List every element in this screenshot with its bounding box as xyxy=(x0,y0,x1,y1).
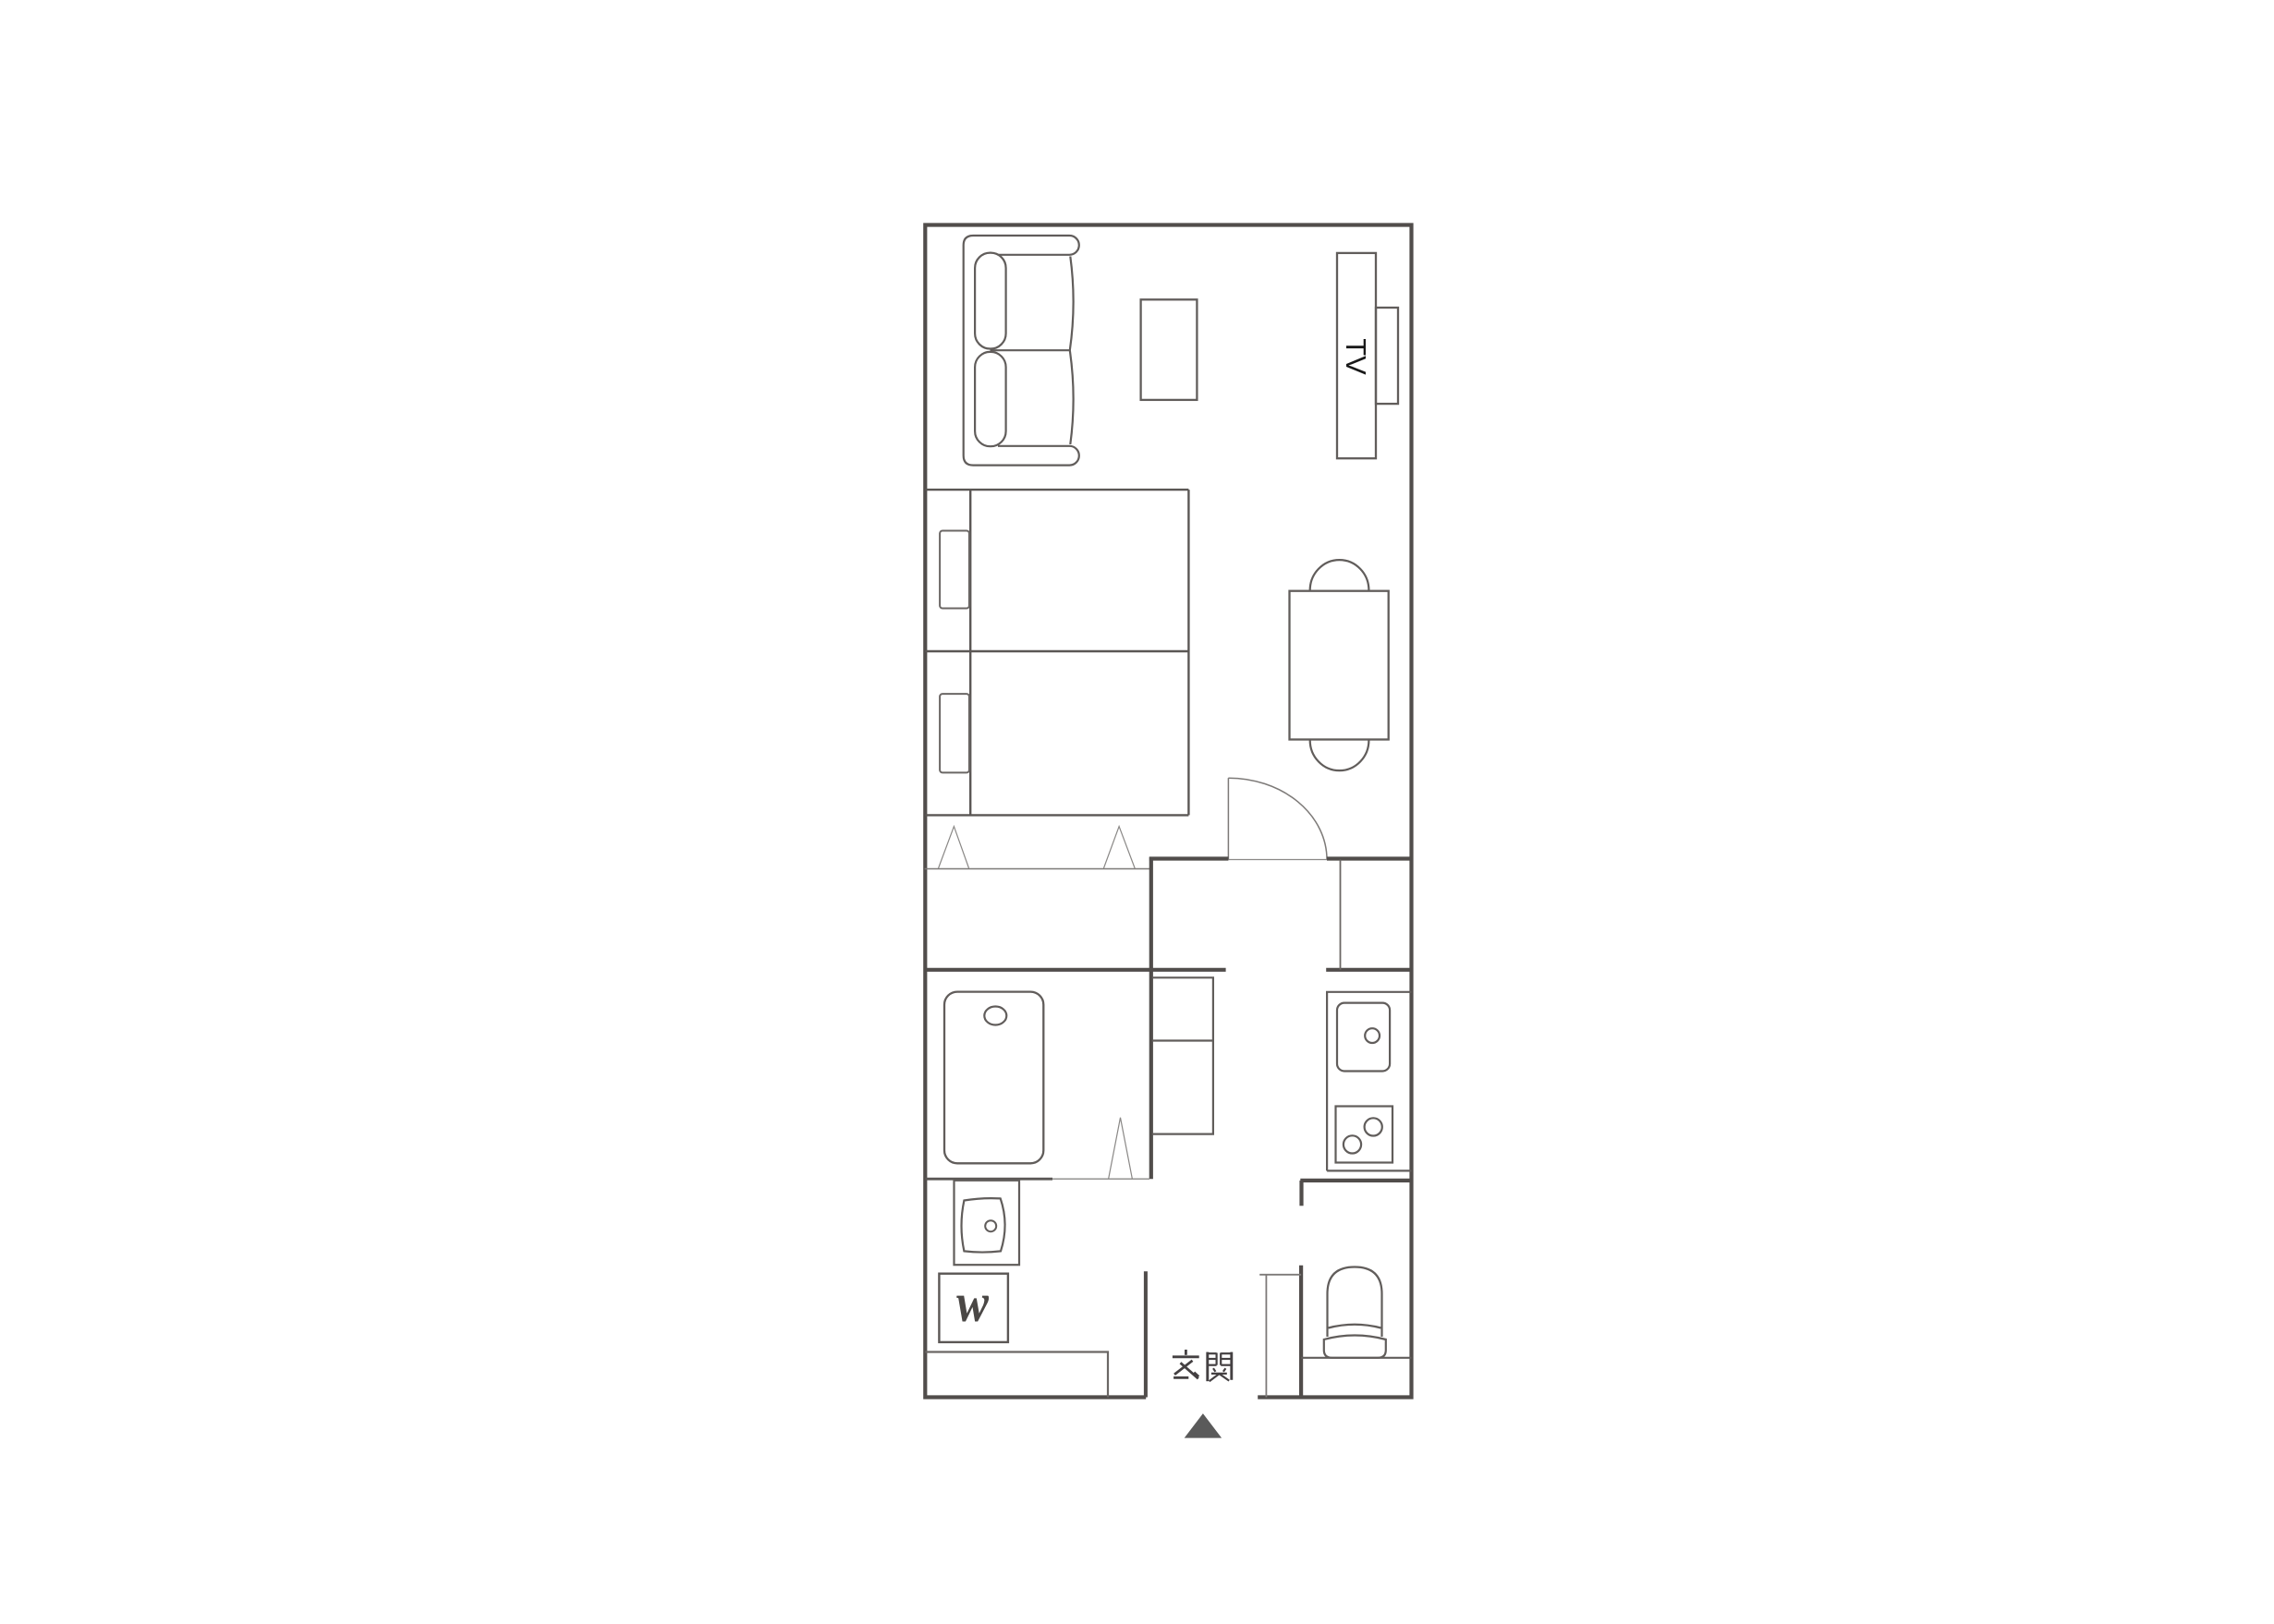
svg-text:TV: TV xyxy=(1340,338,1372,375)
svg-text:w: w xyxy=(956,1273,990,1334)
